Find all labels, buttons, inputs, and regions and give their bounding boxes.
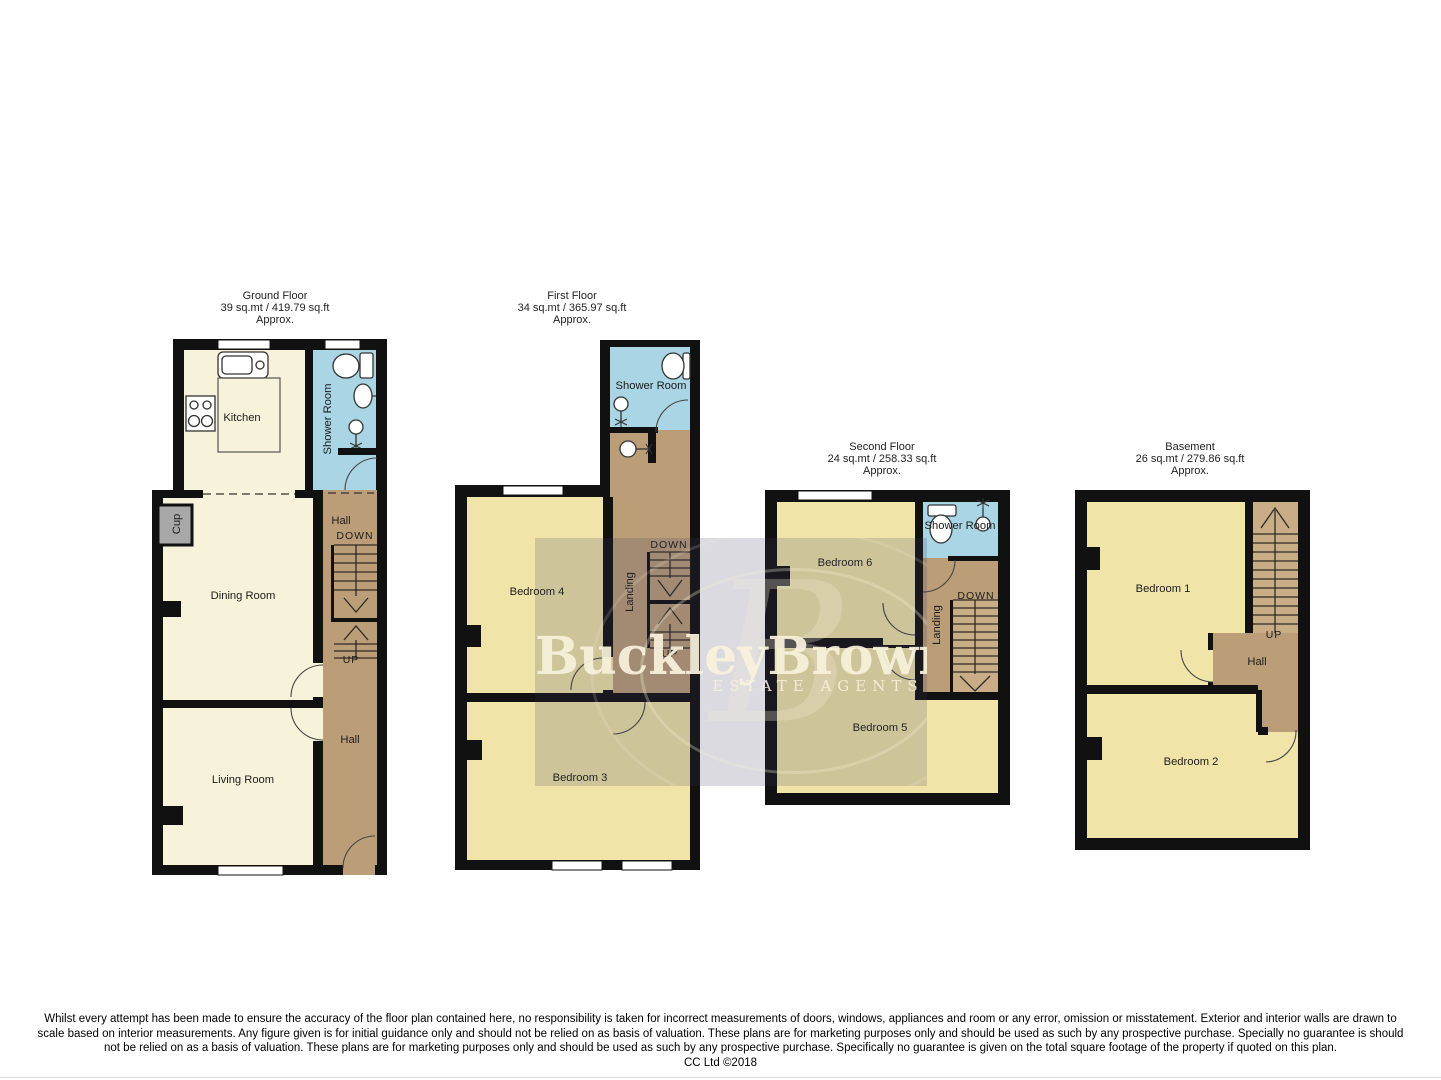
area-text: 26 sq.mt / 279.86 sq.ft (1070, 453, 1310, 465)
landing-bedroom5-wall (915, 692, 1008, 700)
approx-text: Approx. (1070, 465, 1310, 477)
second-shower-label: Shower Room (925, 520, 996, 532)
second-landing-label: Landing (931, 605, 943, 645)
area-text: 34 sq.mt / 365.97 sq.ft (452, 302, 692, 314)
bedroom4-chimney-breast (467, 625, 481, 647)
bedroom3-chimney-breast (467, 740, 482, 760)
title-text: First Floor (452, 290, 692, 302)
ground-floor-plan: Kitchen Shower Room Cup Hall DOWN UP Din… (140, 330, 400, 890)
bottom-divider (0, 1077, 1441, 1078)
ground-shower-label: Shower Room (322, 384, 334, 455)
kitchen-dining-stub-right (295, 490, 323, 498)
stairs-left-wall (1245, 502, 1253, 633)
living-chimney-breast (163, 806, 183, 825)
watermark-overlay: B BuckleyBrown ESTATE AGENTS (535, 538, 927, 786)
second-floor-title: Second Floor 24 sq.mt / 258.33 sq.ft App… (762, 441, 1002, 477)
bedroom2-label: Bedroom 2 (1164, 756, 1219, 768)
living-label: Living Room (212, 774, 274, 786)
ground-hall-label: Hall (340, 734, 359, 746)
basement-up-label: UP (1266, 629, 1283, 641)
ground-down-label: DOWN (336, 530, 373, 542)
bedroom1-chimney-breast (1087, 547, 1100, 570)
floorplan-sheet: Ground Floor 39 sq.mt / 419.79 sq.ft App… (0, 0, 1441, 1080)
title-text: Ground Floor (155, 290, 395, 302)
disclaimer: Whilst every attempt has been made to en… (0, 1012, 1441, 1070)
kitchen-sink (218, 352, 268, 378)
hall-front-door-stub (1258, 727, 1268, 735)
landing-stub-wall (648, 430, 656, 463)
kitchen-label: Kitchen (223, 412, 260, 424)
ground-hall-upper-label: Hall (331, 515, 350, 527)
hall-column-left-wall (1256, 690, 1262, 732)
bedroom1-bedroom2-wall (1075, 685, 1258, 694)
kitchen-shower-wall (305, 350, 313, 490)
cup-label: Cup (171, 514, 183, 535)
disclaimer-copyright: CC Ltd ©2018 (0, 1056, 1441, 1071)
dining-door-opening (313, 663, 323, 697)
basement-title: Basement 26 sq.mt / 279.86 sq.ft Approx. (1070, 441, 1310, 477)
approx-text: Approx. (762, 465, 1002, 477)
bedroom6-window (798, 491, 872, 500)
shower-stub-wall (338, 448, 377, 455)
ground-floor-title: Ground Floor 39 sq.mt / 419.79 sq.ft App… (155, 290, 395, 326)
living-room (163, 708, 313, 865)
kitchen-stove (186, 396, 215, 431)
disclaimer-line: scale based on interior measurements. An… (0, 1027, 1441, 1042)
disclaimer-line: Whilst every attempt has been made to en… (0, 1012, 1441, 1027)
living-door-opening (313, 708, 323, 741)
bedroom2-chimney-breast (1087, 737, 1102, 760)
kitchen-dining-stub-left (173, 490, 203, 498)
watermark-tagline: ESTATE AGENTS (703, 677, 927, 695)
bedroom1-hall-wall-upper (1208, 633, 1213, 650)
approx-text: Approx. (452, 314, 692, 326)
first-toilet (662, 353, 690, 379)
first-floor-title: First Floor 34 sq.mt / 365.97 sq.ft Appr… (452, 290, 692, 326)
dining-living-wall (152, 700, 313, 708)
title-text: Basement (1070, 441, 1310, 453)
bedroom1-label: Bedroom 1 (1136, 583, 1191, 595)
dining-label: Dining Room (211, 590, 276, 602)
area-text: 24 sq.mt / 258.33 sq.ft (762, 453, 1002, 465)
area-text: 39 sq.mt / 419.79 sq.ft (155, 302, 395, 314)
title-text: Second Floor (762, 441, 1002, 453)
second-down-label: DOWN (957, 590, 994, 602)
dining-chimney-breast (163, 601, 181, 617)
first-shower-label: Shower Room (616, 380, 687, 392)
basement-hall-column (1262, 690, 1298, 732)
basement-plan: Bedroom 1 UP Hall Bedroom 2 (1060, 483, 1318, 860)
ground-up-label: UP (343, 654, 360, 666)
approx-text: Approx. (155, 314, 395, 326)
basement-hall-label: Hall (1247, 656, 1266, 668)
ground-toilet (333, 353, 373, 378)
disclaimer-line: not be relied on as a basis of valuation… (0, 1041, 1441, 1056)
